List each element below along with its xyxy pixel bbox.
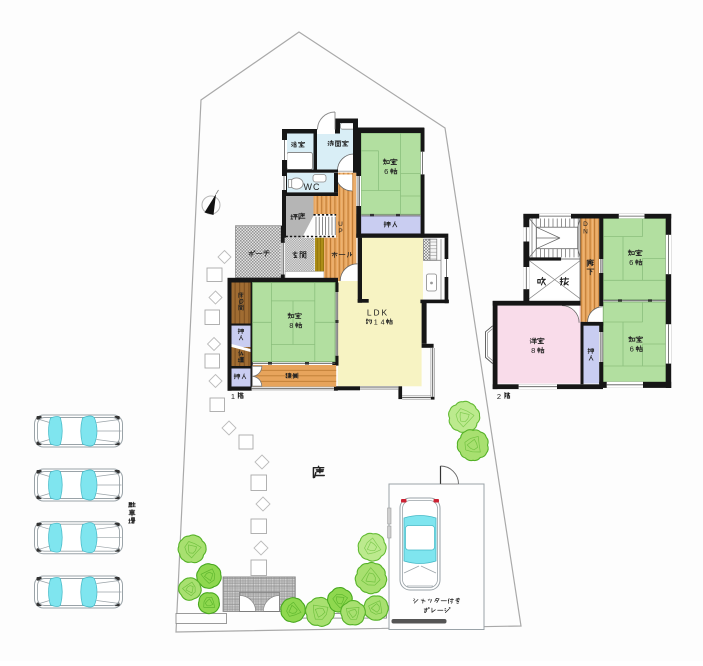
svg-text:2: 2 xyxy=(497,392,501,401)
svg-text:WC: WC xyxy=(304,182,321,192)
svg-text:P: P xyxy=(338,228,342,235)
svg-text:1: 1 xyxy=(231,392,235,401)
svg-text:D: D xyxy=(583,221,588,228)
svg-text:N: N xyxy=(583,229,588,236)
svg-text:8: 8 xyxy=(289,321,293,330)
svg-text:6: 6 xyxy=(629,258,633,267)
svg-text:4: 4 xyxy=(381,317,385,326)
svg-text:6: 6 xyxy=(630,345,634,354)
svg-text:6: 6 xyxy=(384,167,388,176)
svg-text:LDK: LDK xyxy=(367,308,389,318)
svg-text:8: 8 xyxy=(531,346,535,355)
svg-text:U: U xyxy=(338,221,343,228)
svg-text:1: 1 xyxy=(374,317,378,326)
